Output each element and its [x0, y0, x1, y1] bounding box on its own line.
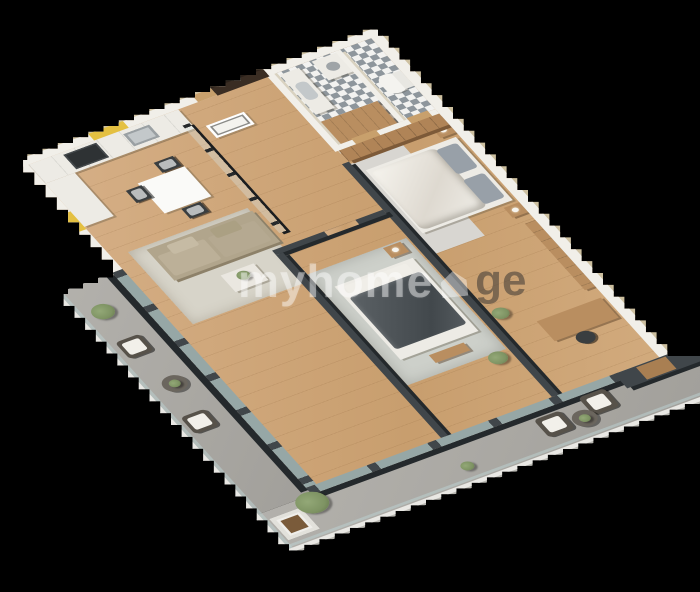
- floor-plan-pixelated-layer: myhome ge: [0, 0, 700, 592]
- apartment-3d-plan: [0, 16, 700, 562]
- floor-plan-scene: myhome ge: [0, 0, 700, 592]
